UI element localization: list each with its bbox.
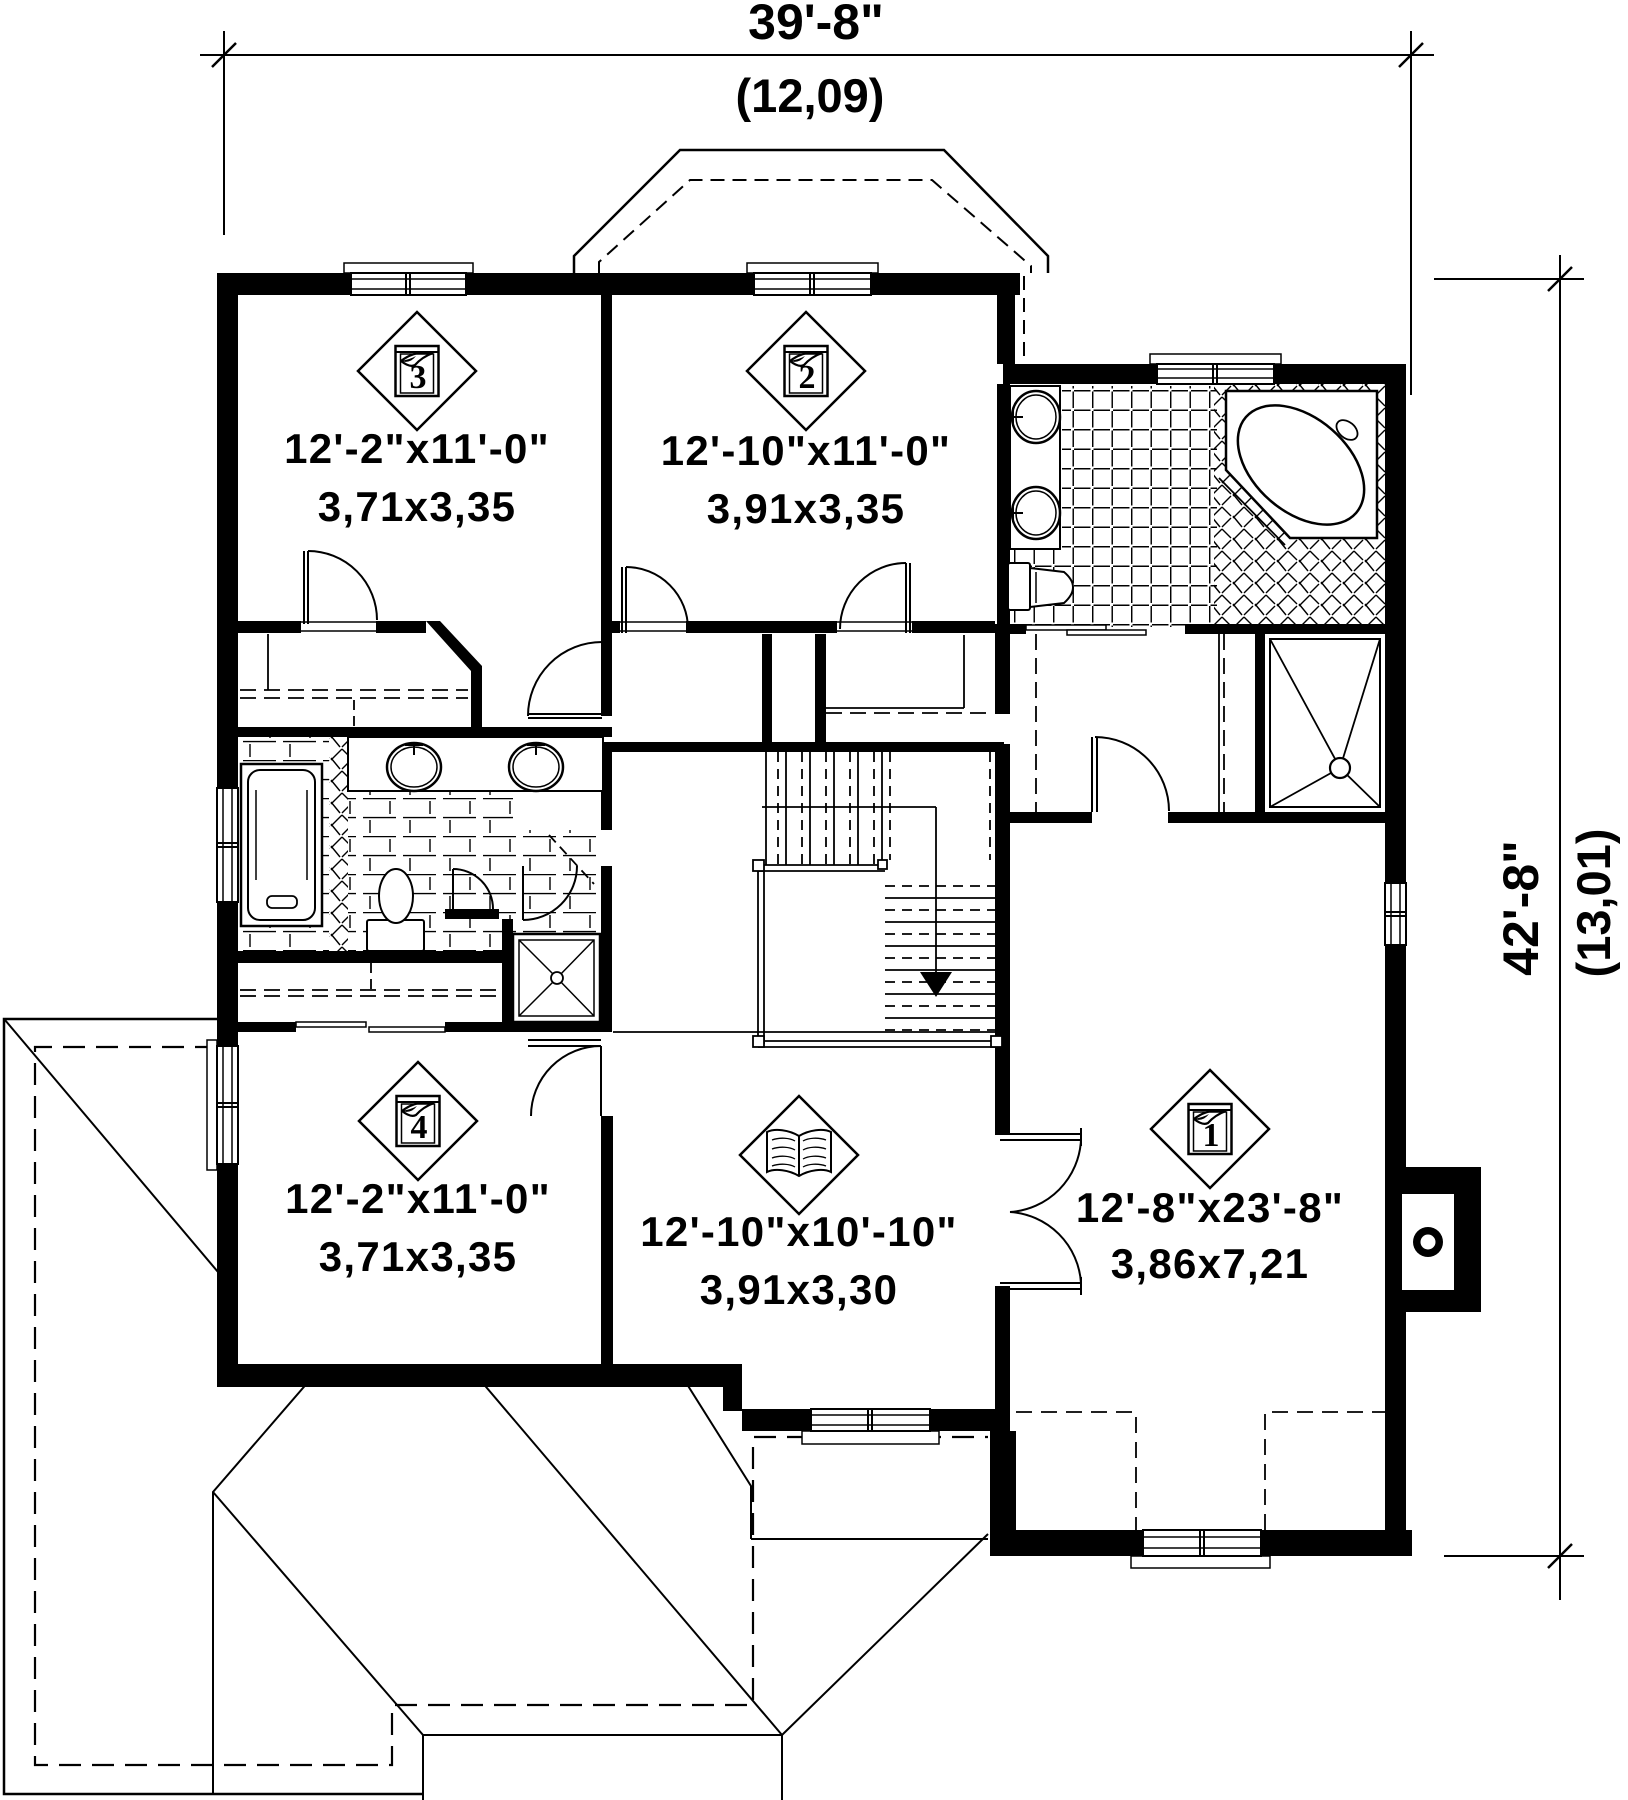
svg-text:2: 2	[799, 359, 816, 396]
svg-text:3: 3	[410, 359, 427, 396]
svg-text:42'-8": 42'-8"	[1493, 840, 1549, 976]
svg-text:12'-2"x11'-0": 12'-2"x11'-0"	[284, 425, 550, 472]
svg-text:1: 1	[1203, 1117, 1220, 1154]
svg-text:(12,09): (12,09)	[736, 69, 885, 122]
svg-text:3,71x3,35: 3,71x3,35	[318, 483, 517, 530]
svg-text:3,91x3,35: 3,91x3,35	[707, 485, 906, 532]
svg-text:12'-2"x11'-0": 12'-2"x11'-0"	[285, 1175, 551, 1222]
svg-text:(13,01): (13,01)	[1567, 829, 1620, 978]
svg-text:12'-10"x11'-0": 12'-10"x11'-0"	[661, 427, 952, 474]
svg-text:3,91x3,30: 3,91x3,30	[700, 1266, 899, 1313]
svg-text:39'-8": 39'-8"	[748, 0, 884, 50]
svg-text:12'-8"x23'-8": 12'-8"x23'-8"	[1076, 1184, 1344, 1231]
svg-text:3,71x3,35: 3,71x3,35	[319, 1233, 518, 1280]
svg-text:12'-10"x10'-10": 12'-10"x10'-10"	[640, 1208, 958, 1255]
svg-text:4: 4	[411, 1109, 428, 1146]
svg-text:3,86x7,21: 3,86x7,21	[1111, 1240, 1310, 1287]
